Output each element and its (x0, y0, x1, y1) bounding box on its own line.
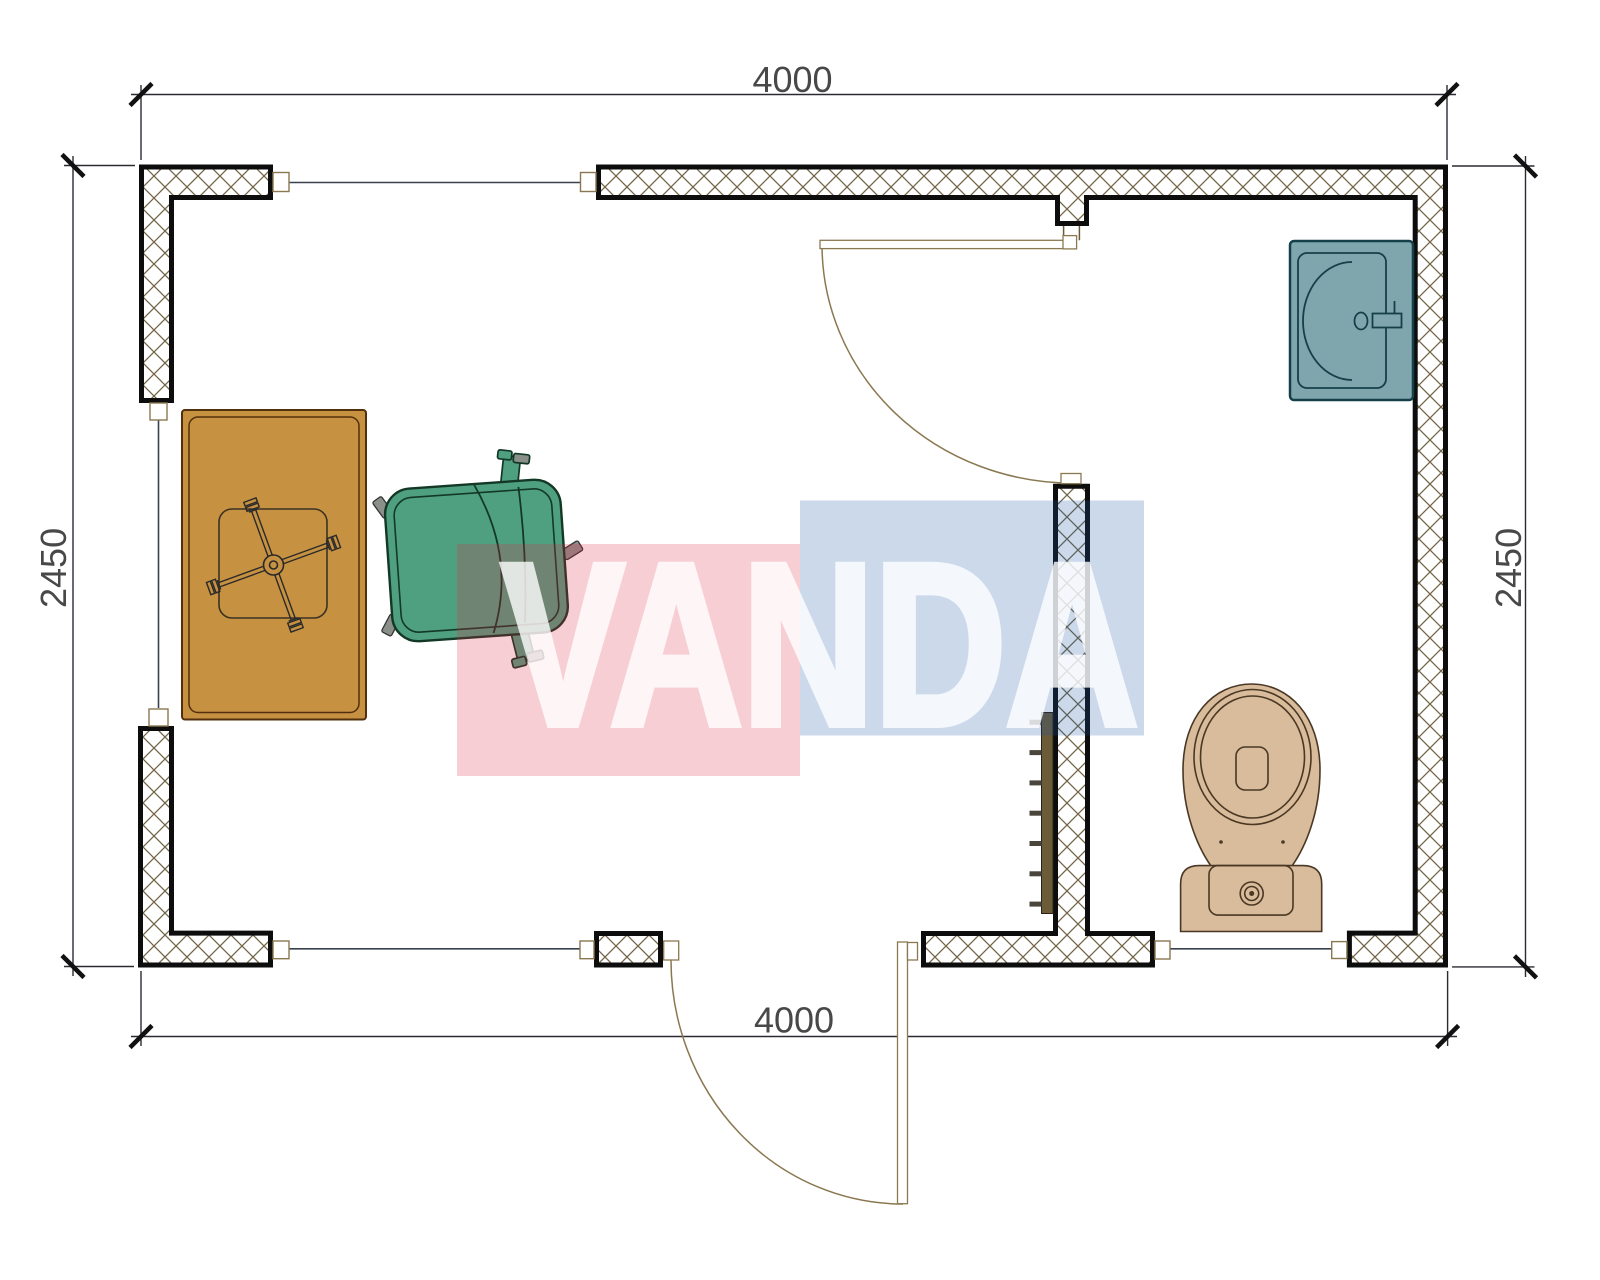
svg-text:VANDA: VANDA (502, 516, 1138, 773)
svg-text:4000: 4000 (752, 59, 832, 100)
svg-text:2450: 2450 (33, 528, 74, 608)
svg-text:4000: 4000 (754, 1000, 834, 1041)
svg-text:2450: 2450 (1488, 528, 1529, 608)
